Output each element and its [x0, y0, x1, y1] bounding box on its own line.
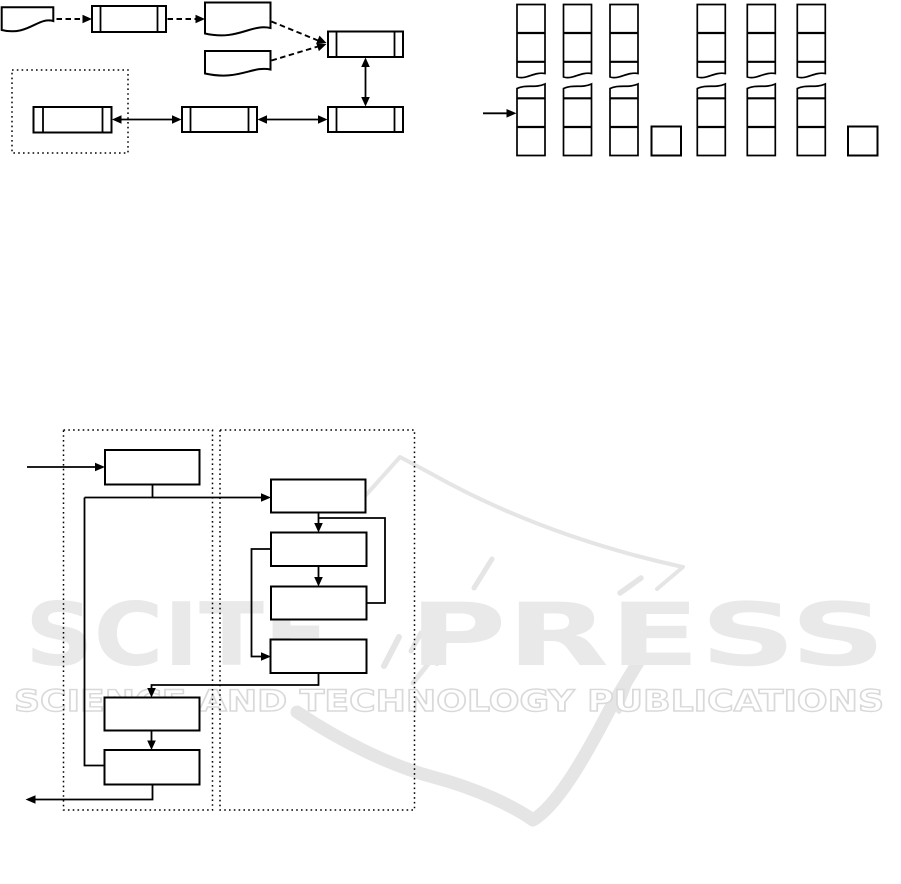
connector-arrow — [147, 731, 156, 751]
detached-cell-square-2 — [848, 127, 878, 156]
watermark-brand-right: PRESS — [409, 584, 886, 686]
document-shape-2 — [205, 3, 271, 36]
flowchart-box-right-4 — [271, 640, 367, 674]
flowchart-box-left-bottom — [105, 750, 200, 785]
process-box-4 — [182, 107, 257, 132]
stack-column-1 — [517, 5, 545, 156]
stack-column-3 — [610, 5, 638, 156]
detached-cell-square-1 — [652, 127, 682, 156]
double-arrow-vertical — [361, 58, 370, 107]
flowchart-box-left-top — [105, 450, 200, 485]
flowchart-box-left-mid — [105, 698, 200, 731]
watermark-feather-icon — [384, 637, 399, 666]
stack-column-6 — [797, 5, 825, 156]
document-shape-3 — [205, 51, 271, 76]
flowchart-box-right-3 — [271, 587, 367, 620]
entry-arrow — [483, 109, 517, 118]
process-box-2 — [328, 32, 403, 58]
figure-canvas: SCITE PRESS SCIENCE AND TECHNOLOGY PUBLI… — [0, 0, 901, 884]
document-shape-1 — [2, 7, 54, 31]
process-box-5 — [34, 107, 112, 133]
stack-column-4 — [697, 5, 725, 156]
watermark-bird-peak-icon — [366, 457, 683, 589]
entry-arrow — [27, 463, 105, 472]
dashed-arrow — [57, 15, 93, 23]
process-box-1 — [92, 6, 166, 32]
double-arrow-horizontal — [258, 115, 328, 124]
connector-arrow — [314, 512, 323, 533]
dashed-arrow — [272, 22, 327, 44]
figure-page: SCITE PRESS SCIENCE AND TECHNOLOGY PUBLI… — [0, 0, 901, 884]
dashed-arrow — [272, 43, 327, 61]
flowchart-box-right-2 — [271, 533, 367, 567]
stack-diagram — [483, 5, 878, 156]
connector-arrow — [85, 493, 272, 502]
dashed-arrow — [168, 15, 206, 23]
flowchart-box-right-1 — [271, 480, 366, 513]
stack-column-2 — [564, 5, 592, 156]
stack-column-5 — [747, 5, 775, 156]
double-arrow-horizontal — [112, 115, 182, 124]
process-box-3 — [328, 107, 403, 132]
pipeline-diagram — [2, 3, 403, 154]
exit-arrow — [26, 785, 153, 804]
